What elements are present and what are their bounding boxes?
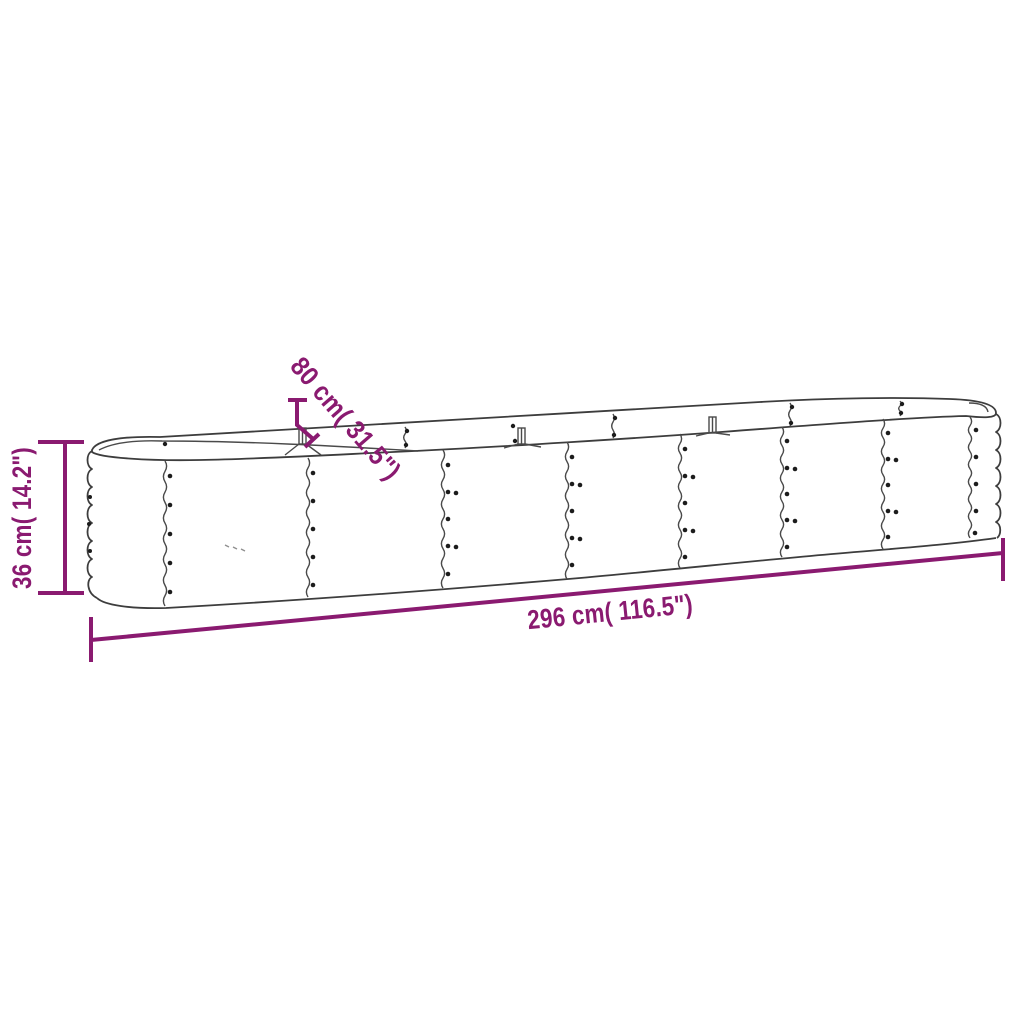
planter-drawing [87,398,1001,608]
planter-right-corrugated-edge [996,414,1001,538]
height-dimension-line [38,442,84,593]
front-panel-seams [163,417,971,606]
width-dimension: 80 cm( 31.5") [284,351,406,485]
rivet-dots [87,402,978,595]
texture-dashes [225,545,245,551]
width-dimension-line [288,400,319,447]
product-dimension-diagram: 36 cm( 14.2") 80 cm( 31.5") 296 cm( 116.… [0,0,1024,1024]
width-dimension-label: 80 cm( 31.5") [284,351,406,485]
height-dimension: 36 cm( 14.2") [7,442,84,593]
height-dimension-label: 36 cm( 14.2") [7,447,37,589]
planter-top-rim-outline [92,398,996,460]
length-dimension-line [91,538,1003,662]
length-dimension: 296 cm( 116.5") [91,538,1003,662]
